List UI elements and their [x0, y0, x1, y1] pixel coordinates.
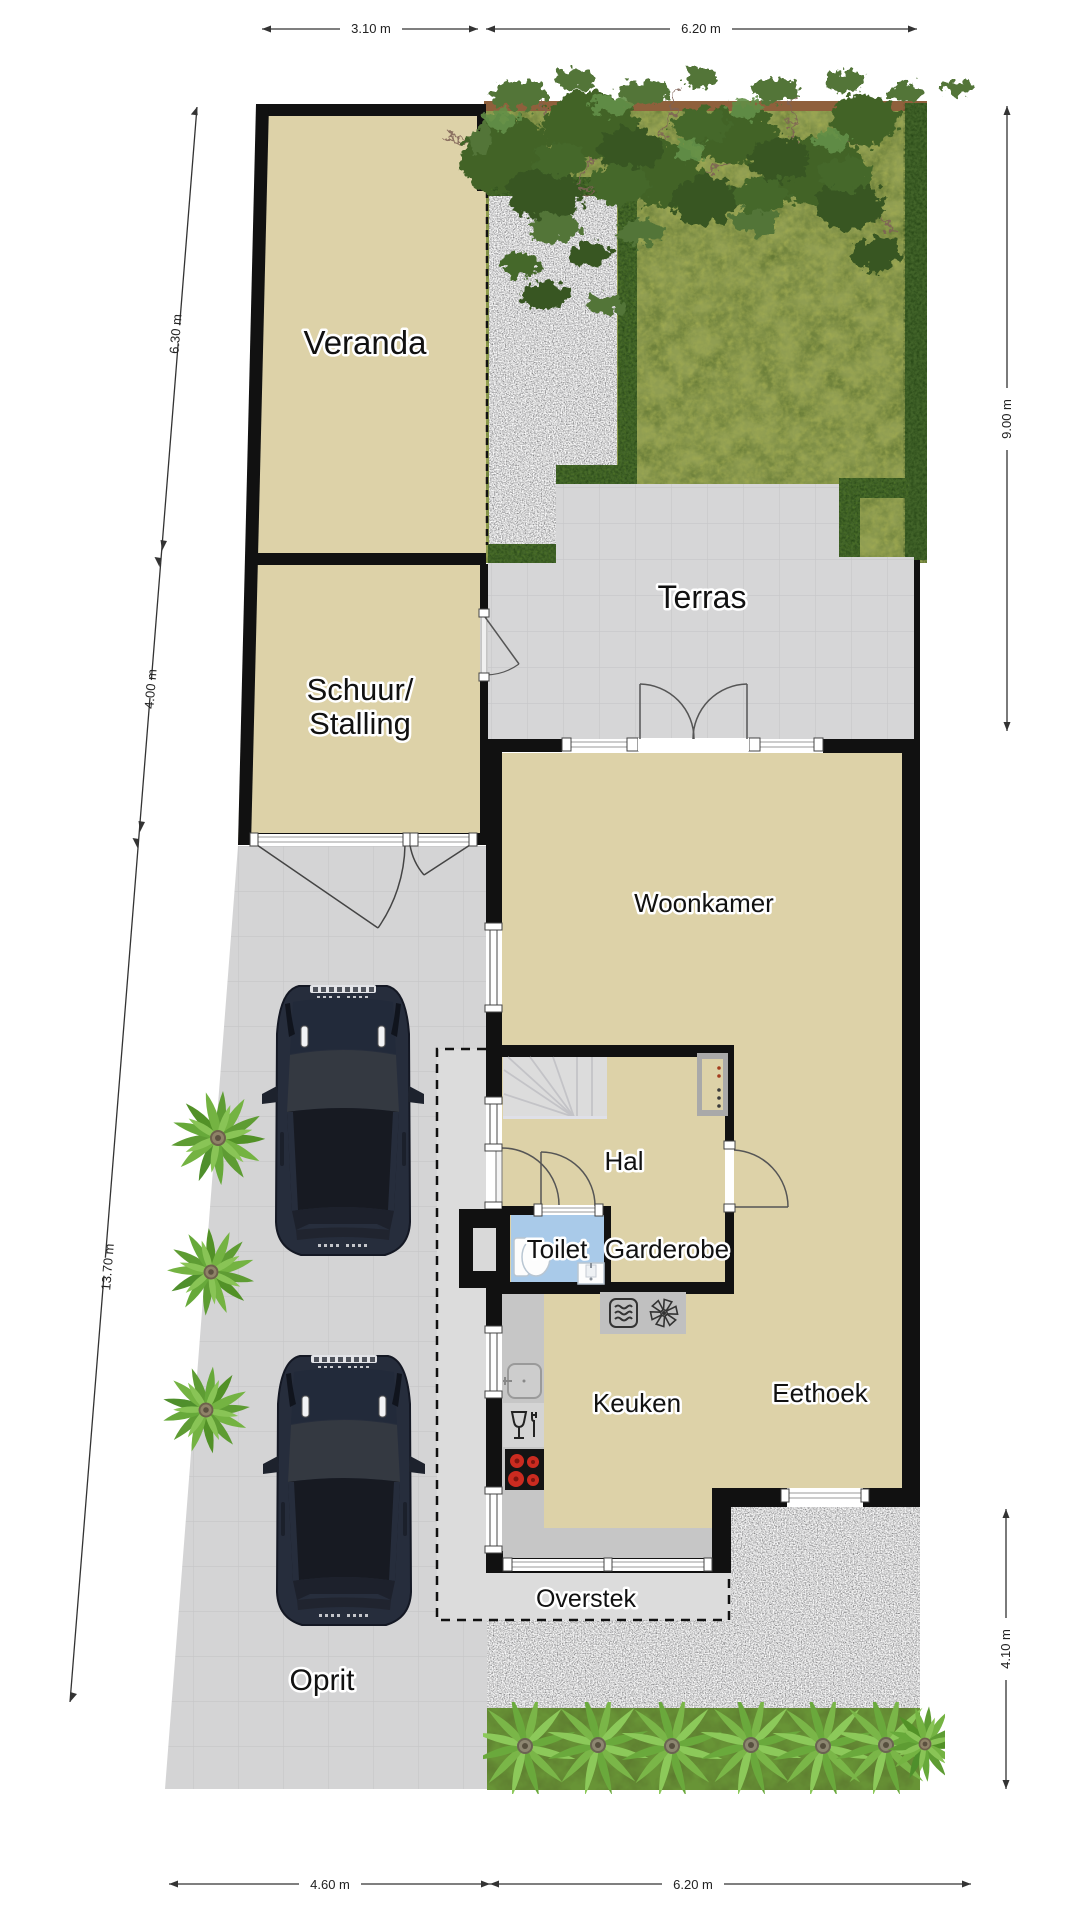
- svg-text:Keuken: Keuken: [593, 1388, 681, 1418]
- svg-text:Garderobe: Garderobe: [605, 1234, 729, 1264]
- svg-text:9.00 m: 9.00 m: [999, 399, 1014, 439]
- svg-text:6.30 m: 6.30 m: [166, 314, 184, 355]
- svg-text:Overstek: Overstek: [536, 1585, 637, 1613]
- svg-text:Terras: Terras: [658, 579, 747, 615]
- svg-text:Schuur/: Schuur/: [307, 672, 414, 707]
- svg-text:Woonkamer: Woonkamer: [634, 888, 774, 918]
- svg-text:6.20 m: 6.20 m: [673, 1877, 713, 1892]
- svg-text:4.00 m: 4.00 m: [141, 669, 159, 710]
- svg-text:Eethoek: Eethoek: [772, 1378, 868, 1408]
- svg-text:4.60 m: 4.60 m: [310, 1877, 350, 1892]
- svg-text:Veranda: Veranda: [304, 324, 428, 361]
- svg-text:4.10 m: 4.10 m: [998, 1629, 1013, 1669]
- svg-text:13.70 m: 13.70 m: [98, 1243, 117, 1291]
- svg-text:Hal: Hal: [604, 1146, 643, 1176]
- svg-text:6.20 m: 6.20 m: [681, 21, 721, 36]
- svg-text:Toilet: Toilet: [527, 1234, 588, 1264]
- svg-text:Oprit: Oprit: [289, 1664, 355, 1697]
- svg-text:3.10 m: 3.10 m: [351, 21, 391, 36]
- svg-text:Stalling: Stalling: [309, 706, 411, 741]
